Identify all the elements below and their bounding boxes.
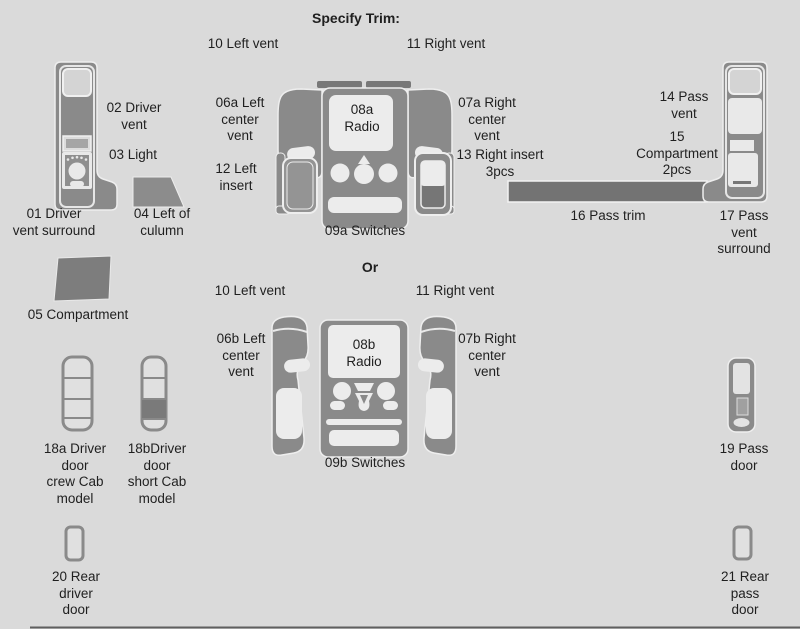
knob-cutout-b1 — [333, 382, 351, 400]
label-21-rear-pass-door: 21 Rear pass door — [721, 569, 769, 619]
label-09a-switches: 09a Switches — [325, 223, 405, 240]
label-16-pass-trim: 16 Pass trim — [570, 208, 645, 225]
or-divider: Or — [362, 259, 378, 276]
knob-cutout-a3 — [379, 164, 398, 183]
pill-cutout-b2 — [383, 401, 398, 410]
driver-vent-cutout — [63, 69, 91, 96]
label-01-driver-vent-surround: 01 Driver vent surround — [13, 206, 96, 239]
right-insert-lower — [421, 186, 445, 208]
label-12-left-insert: 12 Left insert — [215, 161, 256, 194]
part-11-right-vent-strip — [366, 81, 411, 88]
part-18b-driver-door-shape — [142, 357, 166, 430]
pass-upper-panel-cutout — [728, 98, 762, 134]
part-19-pass-door-shape — [728, 358, 755, 432]
pass-small-plate-cutout — [730, 140, 754, 151]
lower-gap-b — [326, 419, 402, 425]
label-10-left-vent-mid: 10 Left vent — [215, 283, 286, 300]
label-15-compartment: 15 Compartment 2pcs — [636, 129, 718, 179]
knob-cutout-a2 — [354, 164, 374, 184]
light-label-slot — [66, 139, 88, 148]
label-02-driver-vent: 02 Driver vent — [107, 100, 162, 133]
part-14-pass-vent-cutout — [729, 69, 761, 94]
label-17-pass-vent-surround: 17 Pass vent surround — [716, 208, 772, 258]
label-14-pass-vent: 14 Pass vent — [660, 89, 709, 122]
right-insert-upper — [421, 161, 445, 186]
pill-cutout-b1 — [330, 401, 345, 410]
label-04-left-of-column: 04 Left of culumn — [134, 206, 190, 239]
bottom-edge-line — [30, 627, 800, 629]
part-12-left-insert-shape — [283, 158, 317, 213]
label-07b-right-center-vent: 07b Right center vent — [458, 331, 516, 381]
label-10-left-vent-top: 10 Left vent — [208, 36, 279, 53]
label-07a-right-center-vent: 07a Right center vent — [458, 95, 516, 145]
label-11-right-vent-top: 11 Right vent — [407, 36, 486, 53]
part-09b-switches-cutout — [329, 430, 399, 446]
pass-door-switch-block — [737, 398, 748, 415]
diagram-canvas: Specify Trim: 10 Left vent 11 Right vent… — [0, 0, 800, 629]
pass-door-window-cutout — [733, 363, 750, 394]
label-08b-radio: 08b Radio — [346, 337, 381, 370]
diagram-title: Specify Trim: — [312, 10, 400, 27]
label-03-light: 03 Light — [109, 147, 157, 164]
label-05-compartment: 05 Compartment — [28, 307, 129, 324]
left-lower-cutout-b — [276, 388, 302, 439]
label-08a-radio: 08a Radio — [344, 102, 379, 135]
label-06a-left-center-vent: 06a Left center vent — [216, 95, 265, 145]
knob-cutout-a1 — [331, 164, 350, 183]
part-05-compartment-shape — [54, 256, 111, 301]
part-01-driver-vent-surround-shape — [55, 62, 117, 210]
pass-door-handle-cutout — [734, 418, 750, 427]
part-16-pass-trim-shape — [508, 181, 707, 202]
door-18b-dark-segment — [142, 399, 166, 419]
part-10-left-vent-strip — [317, 81, 362, 88]
part-13-right-insert-shape — [415, 153, 451, 215]
part-18a-driver-door-shape — [63, 357, 92, 430]
part-09a-switches-cutout — [328, 197, 402, 213]
label-20-rear-driver-door: 20 Rear driver door — [52, 569, 100, 619]
label-19-pass-door: 19 Pass door — [720, 441, 769, 474]
light-switch-button — [70, 181, 84, 187]
right-lower-cutout-b — [426, 388, 452, 439]
part-20-rear-driver-door-shape — [66, 527, 83, 560]
compartment-handle-icon — [733, 181, 751, 184]
label-18b-driver-door: 18bDriver door short Cab model — [128, 441, 187, 507]
label-18a-driver-door: 18a Driver door crew Cab model — [44, 441, 106, 507]
part-04-left-of-column-shape — [133, 177, 184, 207]
part-21-rear-pass-door-shape — [734, 527, 751, 559]
label-13-right-insert: 13 Right insert 3pcs — [456, 147, 543, 180]
light-knob-icon — [69, 163, 86, 180]
label-11-right-vent-mid: 11 Right vent — [416, 283, 495, 300]
label-06b-left-center-vent: 06b Left center vent — [217, 331, 266, 381]
label-09b-switches: 09b Switches — [325, 455, 405, 472]
knob-cutout-b2 — [377, 382, 395, 400]
